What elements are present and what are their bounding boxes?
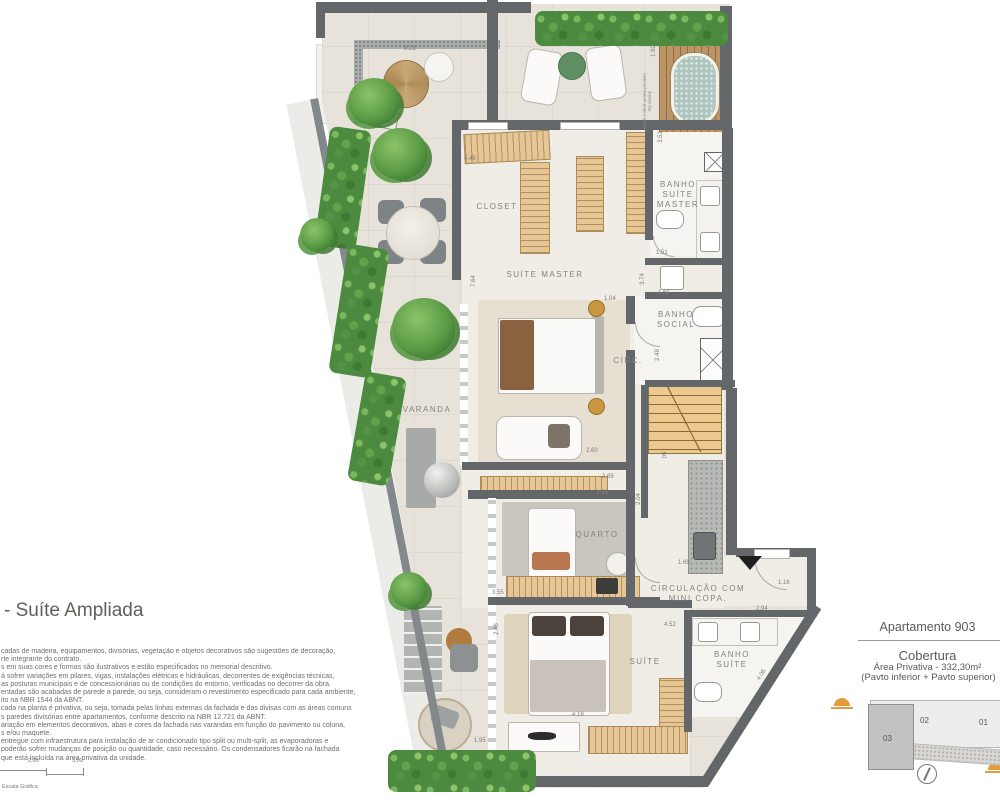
disclaimer-line: ito na NBR 1544 da ABNT. <box>1 697 381 705</box>
suite-blanket <box>530 660 606 712</box>
dimension: 4.48 <box>464 156 476 162</box>
divider-line <box>858 640 1000 641</box>
floorplan-page: { "left_panel": { "heading": "- Suíte Am… <box>0 0 1000 800</box>
vanity-banho-suite <box>692 618 778 646</box>
disclaimer-line: s em suas cores e formas são ilustrativo… <box>1 664 381 672</box>
scale-tick <box>83 768 84 776</box>
disclaimer-line: entadas são acabadas de parede a parede,… <box>1 689 381 697</box>
compass-icon <box>917 764 937 784</box>
keyplan: 02 01 03 <box>855 692 1000 792</box>
scale-line <box>46 774 84 775</box>
disclaimer-line: cadas de madeira, equipamentos, divisóri… <box>1 648 381 656</box>
suite-pillow <box>570 616 604 636</box>
dimension: 4.52 <box>664 622 676 628</box>
toilet-master <box>656 210 684 229</box>
page-title: - Suíte Ampliada <box>4 600 143 622</box>
wall <box>645 380 735 387</box>
wall <box>641 385 648 518</box>
room-label-banho-suite: BANHO SUÍTE <box>710 650 754 670</box>
laptop <box>596 578 618 594</box>
room-label-circulacao: CIRCULAÇÃO COM MINI COPA. <box>650 584 746 604</box>
tree <box>372 128 428 180</box>
glass-door-lower <box>488 498 496 780</box>
nightstand-lamp <box>588 398 605 415</box>
wall <box>462 462 632 470</box>
dimension: 2.94 <box>756 606 768 612</box>
disclaimer-line: as posturas municipais e de concessionár… <box>1 681 381 689</box>
bed-blanket <box>500 320 534 390</box>
disclaimer-line: á sofrer variações em pilares, vigas, in… <box>1 673 381 681</box>
shared-vanity-sink <box>660 266 684 290</box>
entrance-arrow-icon <box>738 556 762 570</box>
room-label-quarto: QUARTO <box>562 530 632 540</box>
chaise-pillow <box>548 424 570 448</box>
green-pouf <box>558 52 586 80</box>
suite-wardrobe <box>588 726 688 754</box>
disclaimer-line: entregue com infraestrutura para instala… <box>1 738 381 746</box>
dimension: 3.74 <box>640 273 646 285</box>
wall <box>626 296 635 324</box>
scale-bar: 2,00 3,00 Escala Gráfica <box>0 756 110 796</box>
wall <box>684 610 814 617</box>
sliding-door <box>468 122 508 130</box>
dimension: 3.51 <box>658 131 664 143</box>
wall <box>626 350 635 606</box>
wall <box>452 128 461 280</box>
dimension: 3.58 <box>596 490 608 496</box>
parapet <box>354 40 500 49</box>
dimension: 1.69 <box>678 560 690 566</box>
disclaimer-line: s e/ou maquete. <box>1 730 381 738</box>
dimension: 8.23 <box>404 46 416 52</box>
apartment-title: Apartamento 903 <box>855 620 1000 634</box>
stairs-count-label: 05 <box>662 452 668 459</box>
room-label-closet: CLOSET <box>462 202 532 212</box>
dimension: 1.04 <box>604 296 616 302</box>
keyplan-unit-label-03: 03 <box>883 734 892 743</box>
kitchen-sink <box>693 532 716 560</box>
disclaimer-line: ariação em elementos decorativos, abas e… <box>1 722 381 730</box>
keyplan-unit-label-02: 02 <box>920 716 929 725</box>
dimension: 3.55 <box>492 590 504 596</box>
floors-note: (Pavto inferior + Pavto superior) <box>857 672 1000 683</box>
lounge-chair <box>584 44 627 102</box>
dimension: 1.95 <box>474 738 486 744</box>
ofuro-note: Ofurô e deck acima previsto My choice <box>642 70 652 132</box>
sink <box>700 232 720 252</box>
tree <box>300 218 334 252</box>
suite-pillow <box>532 616 566 636</box>
hedge-bottom <box>388 750 536 792</box>
decor-tray <box>528 732 556 740</box>
scale-caption: Escala Gráfica <box>2 784 38 790</box>
wall <box>645 258 733 265</box>
room-label-banho-social: BANHO SOCIAL <box>652 310 700 330</box>
glass-door-suite-master <box>460 304 468 466</box>
brand-logo-icon <box>834 698 850 706</box>
ball-sculpture <box>424 462 460 498</box>
dimension: 2.46 <box>494 623 500 635</box>
side-table <box>424 52 454 82</box>
tree <box>392 298 456 358</box>
nightstand-lamp <box>588 300 605 317</box>
scale-tick-label: 3,00 <box>72 758 83 764</box>
pouf-gray <box>450 644 478 672</box>
ofuro-tub <box>671 53 719 125</box>
disclaimer-line: poderão sofrer mudanças de posição ou qu… <box>1 746 381 754</box>
hedge-top <box>535 11 728 46</box>
dimension: 4.18 <box>572 712 584 718</box>
dimension: 1.90 <box>651 45 657 57</box>
scale-tick-label: 2,00 <box>28 758 39 764</box>
wardrobe <box>463 130 550 164</box>
dining-table <box>386 206 440 260</box>
room-label-suite: SUÍTE <box>618 657 672 667</box>
quarto-pillow <box>532 552 570 570</box>
wall <box>684 610 692 732</box>
wall <box>316 2 531 13</box>
disclaimer-block: cadas de madeira, equipamentos, divisóri… <box>1 648 381 763</box>
scale-line <box>0 770 46 771</box>
room-label-suite-master: SUÍTE MASTER <box>485 270 605 280</box>
tree <box>390 572 428 608</box>
room-label-circ: CIRC. <box>608 356 648 366</box>
room-label-varanda: VARANDA <box>392 405 462 415</box>
sliding-door <box>560 122 620 130</box>
suite-wardrobe <box>659 678 687 730</box>
keyplan-unit-label-01: 01 <box>979 718 988 727</box>
tree <box>348 78 400 126</box>
room-label-banho-suite-master: BANHO SUÍTE MASTER <box>648 180 708 210</box>
disclaimer-line: cada na planta é privativa, ou seja, tom… <box>1 705 381 713</box>
unit-type: Cobertura <box>855 648 1000 663</box>
dimension: 2.48 <box>655 349 661 361</box>
disclaimer-line: s paredes divisórias entre apartamentos,… <box>1 714 381 722</box>
dimension: 2.60 <box>586 448 598 454</box>
disclaimer-line: rte integrante do contrato. <box>1 656 381 664</box>
dimension: 2.69 <box>602 474 614 480</box>
compass-needle <box>923 767 930 780</box>
wall <box>316 2 325 38</box>
dimension: 1.61 <box>658 290 670 296</box>
wall <box>726 388 737 555</box>
toilet-banho-suite <box>694 682 722 702</box>
scale-tick <box>46 768 47 776</box>
dimension: 2.04 <box>636 493 642 505</box>
dimension: 1.16 <box>778 580 790 586</box>
stair-winder-line <box>648 386 720 452</box>
dimension: 1.51 <box>656 250 668 256</box>
dimension: 7.64 <box>471 275 477 287</box>
wall <box>487 0 498 124</box>
closet-island <box>576 156 604 232</box>
